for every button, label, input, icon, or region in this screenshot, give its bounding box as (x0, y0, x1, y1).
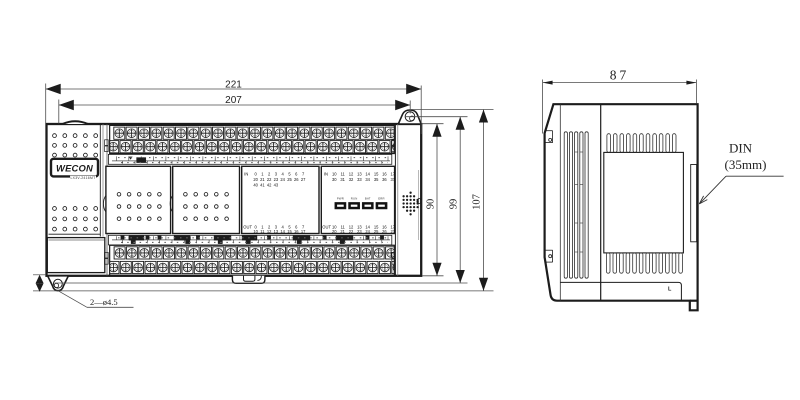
svg-text:BAT: BAT (365, 196, 371, 200)
svg-text:11: 11 (260, 229, 265, 234)
svg-text:22: 22 (267, 177, 272, 182)
svg-text:OUT: OUT (322, 224, 331, 229)
svg-text:15: 15 (287, 229, 292, 234)
svg-text:10: 10 (332, 171, 337, 176)
svg-text:23: 23 (274, 177, 279, 182)
svg-text:13: 13 (274, 229, 279, 234)
svg-text:207: 207 (225, 95, 242, 106)
svg-text:16: 16 (382, 171, 387, 176)
svg-text:36: 36 (382, 177, 387, 182)
svg-text:21: 21 (340, 229, 345, 234)
svg-text:13: 13 (357, 171, 362, 176)
svg-text:41: 41 (260, 182, 265, 187)
svg-text:IN: IN (324, 171, 328, 176)
svg-text:25: 25 (374, 229, 379, 234)
svg-text:15: 15 (374, 171, 379, 176)
svg-text:2—ø4.5: 2—ø4.5 (90, 297, 118, 307)
svg-text:31: 31 (340, 177, 345, 182)
svg-text:17: 17 (301, 229, 306, 234)
svg-text:(35mm): (35mm) (725, 157, 767, 172)
svg-text:26: 26 (294, 177, 299, 182)
svg-text:23: 23 (357, 229, 362, 234)
svg-text:24: 24 (280, 177, 285, 182)
svg-text:LX3V-2416MT: LX3V-2416MT (71, 176, 96, 180)
svg-text:30: 30 (332, 177, 337, 182)
svg-text:87: 87 (610, 68, 630, 83)
svg-text:35: 35 (374, 177, 379, 182)
svg-text:24: 24 (365, 229, 370, 234)
svg-text:21: 21 (260, 177, 265, 182)
svg-text:RUN: RUN (351, 196, 358, 200)
svg-text:PWR: PWR (337, 196, 344, 200)
svg-text:20: 20 (332, 229, 337, 234)
svg-text:27: 27 (301, 177, 306, 182)
svg-text:20: 20 (253, 177, 258, 182)
svg-text:221: 221 (225, 79, 242, 90)
svg-text:42: 42 (267, 182, 272, 187)
svg-text:DIN: DIN (729, 141, 753, 156)
svg-text:32: 32 (349, 177, 354, 182)
svg-text:99: 99 (449, 199, 460, 210)
svg-text:IN: IN (244, 171, 248, 176)
svg-text:ERR: ERR (378, 196, 385, 200)
svg-text:16: 16 (294, 229, 299, 234)
svg-text:14: 14 (280, 229, 285, 234)
svg-text:25: 25 (287, 177, 292, 182)
svg-text:33: 33 (357, 177, 362, 182)
svg-text:10: 10 (253, 229, 258, 234)
svg-text:26: 26 (382, 229, 387, 234)
svg-text:43: 43 (274, 182, 279, 187)
svg-text:90: 90 (426, 199, 437, 210)
svg-text:12: 12 (349, 171, 354, 176)
svg-text:14: 14 (365, 171, 370, 176)
svg-text:12: 12 (267, 229, 272, 234)
svg-text:107: 107 (472, 194, 483, 210)
svg-text:22: 22 (349, 229, 354, 234)
svg-text:34: 34 (365, 177, 370, 182)
svg-text:40: 40 (253, 182, 258, 187)
svg-text:WECON: WECON (56, 163, 93, 174)
svg-text:11: 11 (341, 171, 346, 176)
svg-text:OUT: OUT (243, 224, 252, 229)
